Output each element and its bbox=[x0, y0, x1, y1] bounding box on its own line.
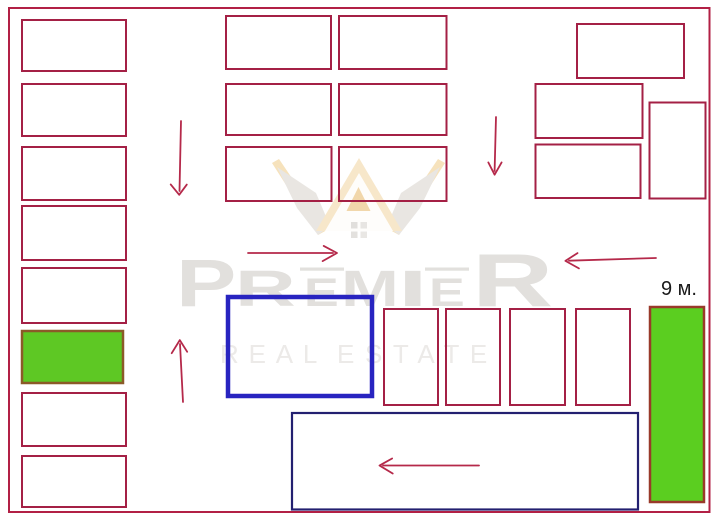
svg-text:9 м.: 9 м. bbox=[661, 278, 697, 300]
svg-text:ESTATE: ESTATE bbox=[337, 339, 498, 369]
svg-text:E: E bbox=[304, 270, 339, 315]
svg-text:R: R bbox=[235, 260, 296, 317]
svg-text:REAL: REAL bbox=[220, 339, 327, 369]
